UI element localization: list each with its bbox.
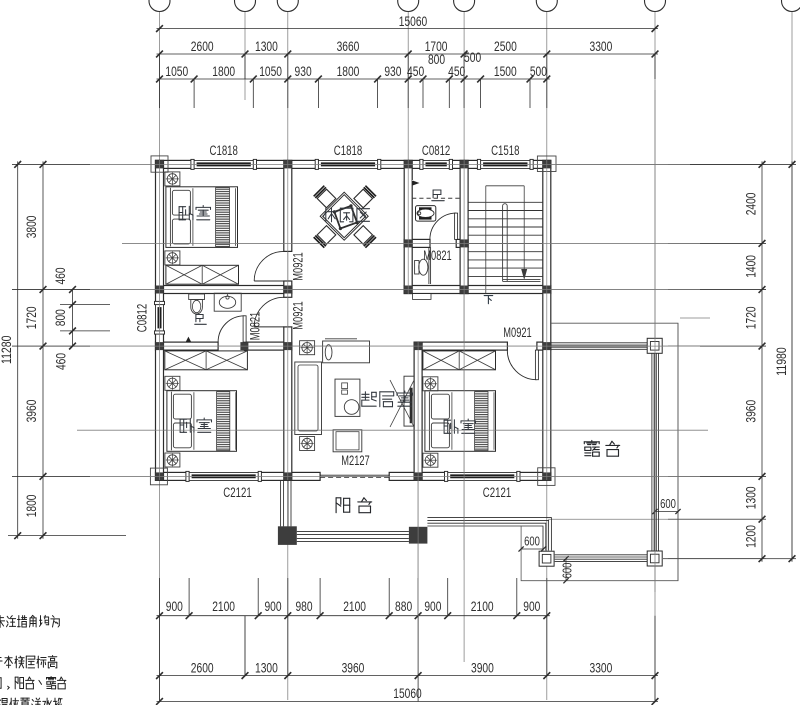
svg-text:2100: 2100 bbox=[212, 599, 235, 614]
svg-text:2100: 2100 bbox=[343, 599, 366, 614]
svg-text:C1818: C1818 bbox=[210, 143, 238, 158]
svg-text:C2121: C2121 bbox=[483, 485, 511, 500]
svg-text:C0812: C0812 bbox=[135, 304, 150, 332]
svg-text:M0921: M0921 bbox=[291, 252, 306, 280]
svg-text:C0812: C0812 bbox=[422, 143, 450, 158]
svg-text:M0821: M0821 bbox=[423, 248, 451, 263]
svg-text:3660: 3660 bbox=[337, 39, 360, 54]
svg-text:1300: 1300 bbox=[744, 486, 759, 509]
svg-text:1720: 1720 bbox=[744, 306, 759, 329]
svg-text:460: 460 bbox=[54, 353, 69, 370]
svg-text:M0821: M0821 bbox=[248, 312, 263, 340]
svg-text:3960: 3960 bbox=[744, 400, 759, 423]
svg-text:2400: 2400 bbox=[744, 193, 759, 216]
svg-text:1800: 1800 bbox=[337, 64, 360, 79]
svg-text:880: 880 bbox=[395, 599, 412, 614]
svg-text:M0921: M0921 bbox=[291, 301, 306, 329]
svg-text:C1818: C1818 bbox=[334, 143, 362, 158]
svg-text:600: 600 bbox=[561, 563, 575, 579]
svg-text:450: 450 bbox=[448, 64, 465, 79]
svg-text:450: 450 bbox=[407, 64, 424, 79]
svg-text:1300: 1300 bbox=[255, 39, 278, 54]
svg-text:1500: 1500 bbox=[494, 64, 517, 79]
svg-text:3960: 3960 bbox=[24, 400, 39, 423]
svg-text:900: 900 bbox=[523, 599, 540, 614]
svg-text:C2121: C2121 bbox=[223, 485, 251, 500]
svg-text:800: 800 bbox=[53, 309, 68, 326]
svg-text:600: 600 bbox=[524, 535, 540, 549]
svg-text:1300: 1300 bbox=[255, 661, 278, 676]
svg-text:980: 980 bbox=[295, 599, 312, 614]
svg-text:3800: 3800 bbox=[24, 216, 39, 239]
svg-text:600: 600 bbox=[660, 497, 676, 511]
svg-text:1050: 1050 bbox=[165, 64, 188, 79]
svg-text:460: 460 bbox=[53, 267, 68, 284]
svg-text:900: 900 bbox=[166, 599, 183, 614]
svg-text:3300: 3300 bbox=[590, 39, 613, 54]
svg-text:900: 900 bbox=[424, 599, 441, 614]
svg-text:1050: 1050 bbox=[259, 64, 282, 79]
svg-text:C1518: C1518 bbox=[491, 143, 519, 158]
svg-text:15060: 15060 bbox=[393, 686, 421, 701]
svg-text:M0921: M0921 bbox=[503, 325, 531, 340]
svg-text:3900: 3900 bbox=[471, 661, 494, 676]
svg-text:930: 930 bbox=[384, 64, 401, 79]
svg-text:11980: 11980 bbox=[774, 347, 789, 375]
svg-text:500: 500 bbox=[464, 50, 481, 65]
svg-text:1800: 1800 bbox=[24, 495, 39, 518]
svg-text:2600: 2600 bbox=[191, 39, 214, 54]
svg-text:3300: 3300 bbox=[590, 661, 613, 676]
svg-text:1400: 1400 bbox=[744, 255, 759, 278]
svg-text:M2127: M2127 bbox=[341, 453, 369, 468]
svg-text:2500: 2500 bbox=[494, 39, 517, 54]
svg-text:930: 930 bbox=[295, 64, 312, 79]
svg-text:11280: 11280 bbox=[0, 336, 14, 364]
svg-text:15060: 15060 bbox=[399, 14, 427, 29]
svg-text:1800: 1800 bbox=[212, 64, 235, 79]
svg-text:2600: 2600 bbox=[191, 661, 214, 676]
svg-text:500: 500 bbox=[530, 64, 547, 79]
svg-text:2100: 2100 bbox=[471, 599, 494, 614]
svg-text:900: 900 bbox=[264, 599, 281, 614]
svg-text:3960: 3960 bbox=[342, 661, 365, 676]
svg-text:1720: 1720 bbox=[24, 306, 39, 329]
svg-text:800: 800 bbox=[428, 52, 445, 67]
svg-text:1200: 1200 bbox=[744, 525, 759, 548]
